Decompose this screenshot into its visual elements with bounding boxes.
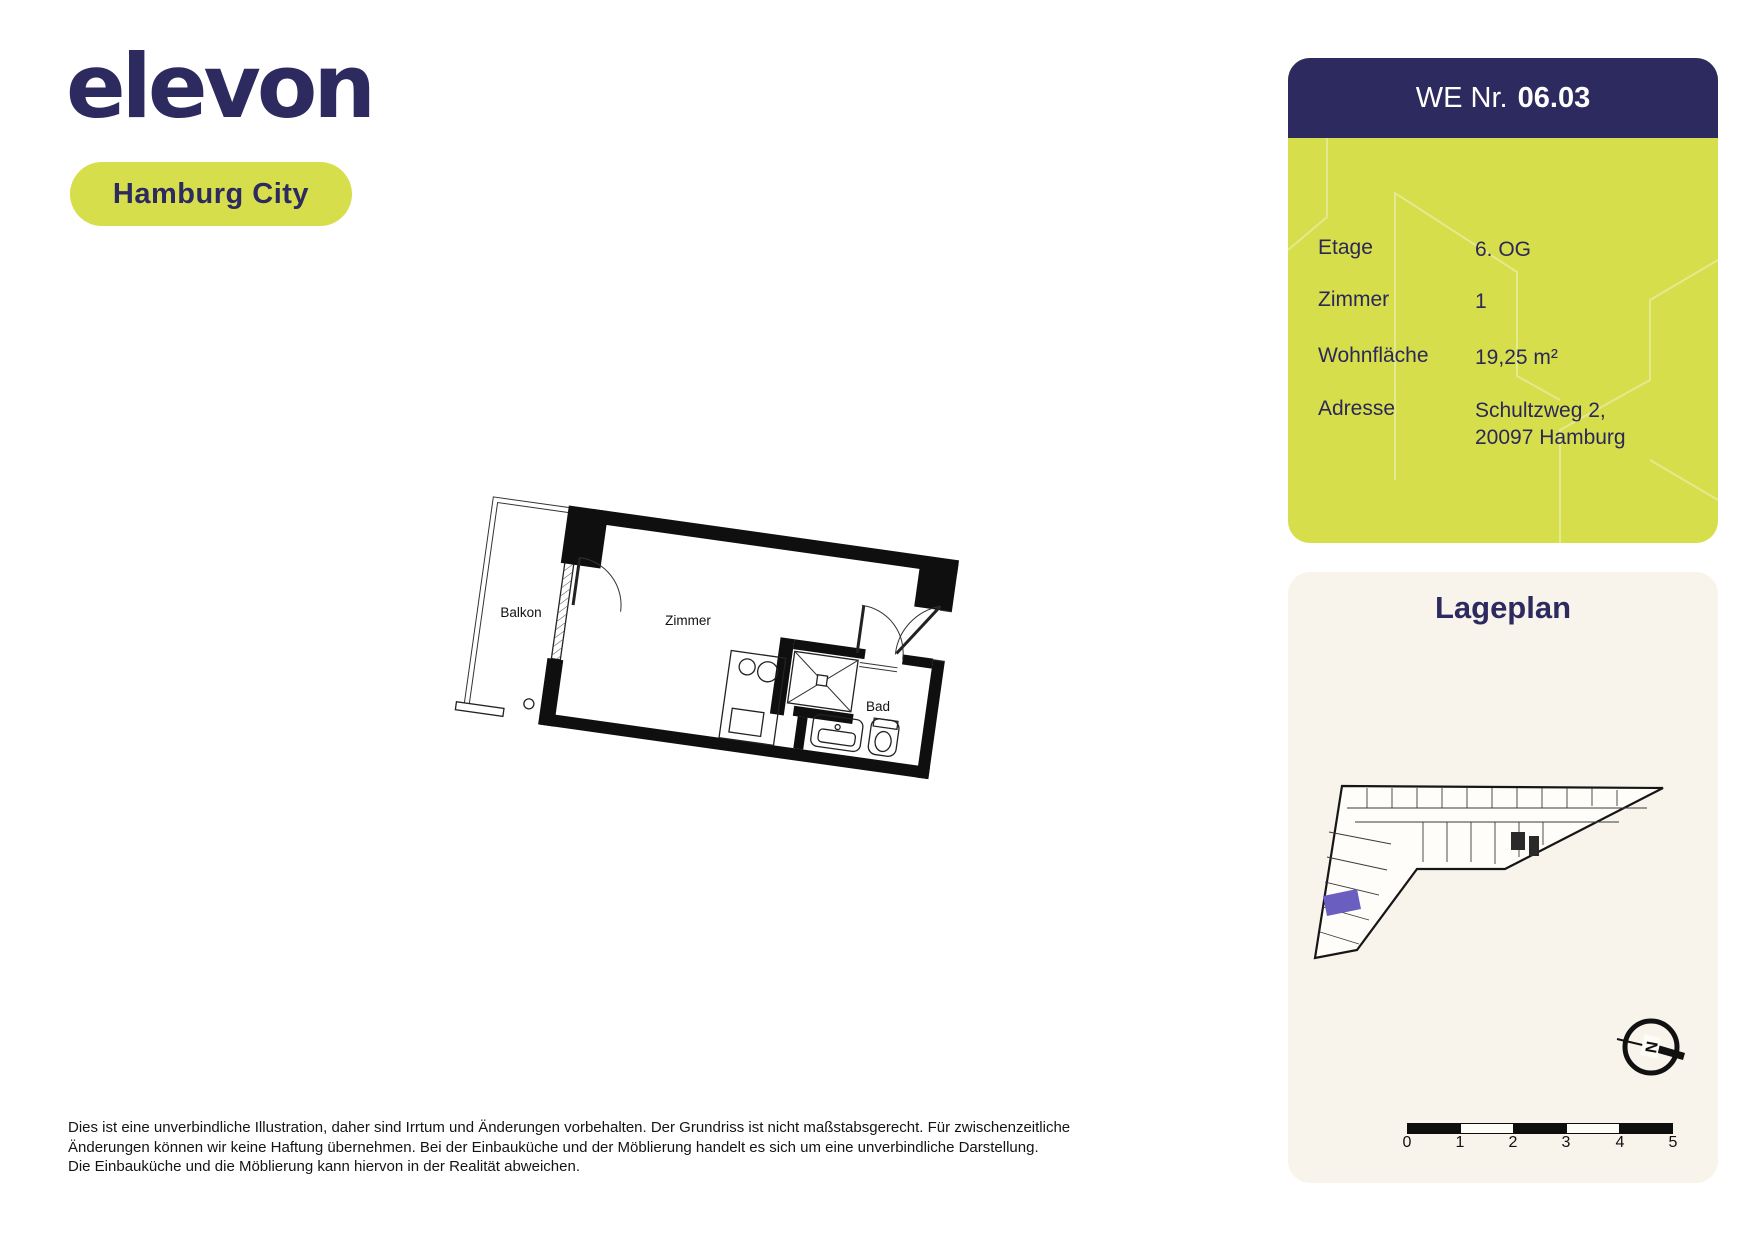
building-core bbox=[1511, 832, 1525, 850]
siteplan-drawing bbox=[1303, 762, 1703, 992]
scale-segment bbox=[1566, 1124, 1620, 1133]
floorplan-drawing: Balkon Zimmer Bad bbox=[380, 420, 1020, 840]
row-value: 1 bbox=[1475, 288, 1487, 315]
scale-tick: 5 bbox=[1669, 1134, 1678, 1152]
row-label: Adresse bbox=[1318, 397, 1475, 451]
address-line-1: Schultzweg 2, bbox=[1475, 397, 1626, 424]
address-line-2: 20097 Hamburg bbox=[1475, 424, 1626, 451]
toilet bbox=[867, 718, 900, 758]
building-outline bbox=[1315, 786, 1663, 958]
scale-tick: 4 bbox=[1616, 1134, 1625, 1152]
floorplan-label-zimmer: Zimmer bbox=[665, 613, 711, 628]
unit-row-wohnflaeche: Wohnfläche 19,25 m² bbox=[1318, 344, 1698, 371]
row-value: Schultzweg 2, 20097 Hamburg bbox=[1475, 397, 1626, 451]
floorplan-sheet: { "brand": { "logo_text": "elevon", "loc… bbox=[0, 0, 1753, 1240]
disclaimer-line: Die Einbauküche und die Möblierung kann … bbox=[68, 1157, 1218, 1177]
disclaimer-text: Dies ist eine unverbindliche Illustratio… bbox=[68, 1118, 1218, 1177]
scale-tick: 1 bbox=[1456, 1134, 1465, 1152]
kitchen-sink bbox=[729, 708, 764, 736]
siteplan-title: Lageplan bbox=[1288, 590, 1718, 626]
scale-tick: 3 bbox=[1562, 1134, 1571, 1152]
scale-segment bbox=[1620, 1124, 1672, 1133]
scale-tick: 0 bbox=[1403, 1134, 1412, 1152]
scale-tick: 2 bbox=[1509, 1134, 1518, 1152]
row-label: Etage bbox=[1318, 236, 1475, 263]
scale-segment bbox=[1460, 1124, 1514, 1133]
brand-logo: elevon bbox=[66, 28, 386, 146]
building-core bbox=[1529, 836, 1539, 856]
column-symbol bbox=[523, 698, 534, 709]
unit-number-prefix: WE Nr. bbox=[1416, 82, 1508, 115]
entrance-door bbox=[895, 601, 940, 660]
unit-number: 06.03 bbox=[1518, 82, 1591, 115]
disclaimer-line: Dies ist eine unverbindliche Illustratio… bbox=[68, 1118, 1218, 1138]
bathroom-door bbox=[853, 605, 909, 672]
row-label: Wohnfläche bbox=[1318, 344, 1475, 371]
unit-row-adresse: Adresse Schultzweg 2, 20097 Hamburg bbox=[1318, 397, 1698, 451]
scale-segment bbox=[1514, 1124, 1566, 1133]
apartment-plan-rotated-group bbox=[455, 494, 959, 779]
location-badge: Hamburg City bbox=[70, 162, 352, 226]
exterior-walls bbox=[538, 506, 959, 780]
unit-row-zimmer: Zimmer 1 bbox=[1318, 288, 1698, 315]
map-scale-bar bbox=[1407, 1123, 1673, 1134]
shower bbox=[788, 651, 859, 711]
unit-row-etage: Etage 6. OG bbox=[1318, 236, 1698, 263]
row-value: 19,25 m² bbox=[1475, 344, 1558, 371]
floorplan-label-bad: Bad bbox=[866, 699, 890, 714]
compass-north-icon: N bbox=[1611, 1007, 1691, 1087]
disclaimer-line: Änderungen können wir keine Haftung über… bbox=[68, 1138, 1218, 1158]
row-value: 6. OG bbox=[1475, 236, 1531, 263]
cooktop-burner bbox=[738, 658, 756, 676]
location-badge-label: Hamburg City bbox=[113, 178, 309, 211]
scale-segment bbox=[1408, 1124, 1460, 1133]
floorplan-label-balkon: Balkon bbox=[500, 605, 541, 620]
siteplan-card: Lageplan N bbox=[1288, 572, 1718, 1183]
unit-card-header: WE Nr. 06.03 bbox=[1288, 58, 1718, 138]
unit-info-card: WE Nr. 06.03 Etage 6. OG Zimmer 1 Wohnfl… bbox=[1288, 58, 1718, 543]
row-label: Zimmer bbox=[1318, 288, 1475, 315]
